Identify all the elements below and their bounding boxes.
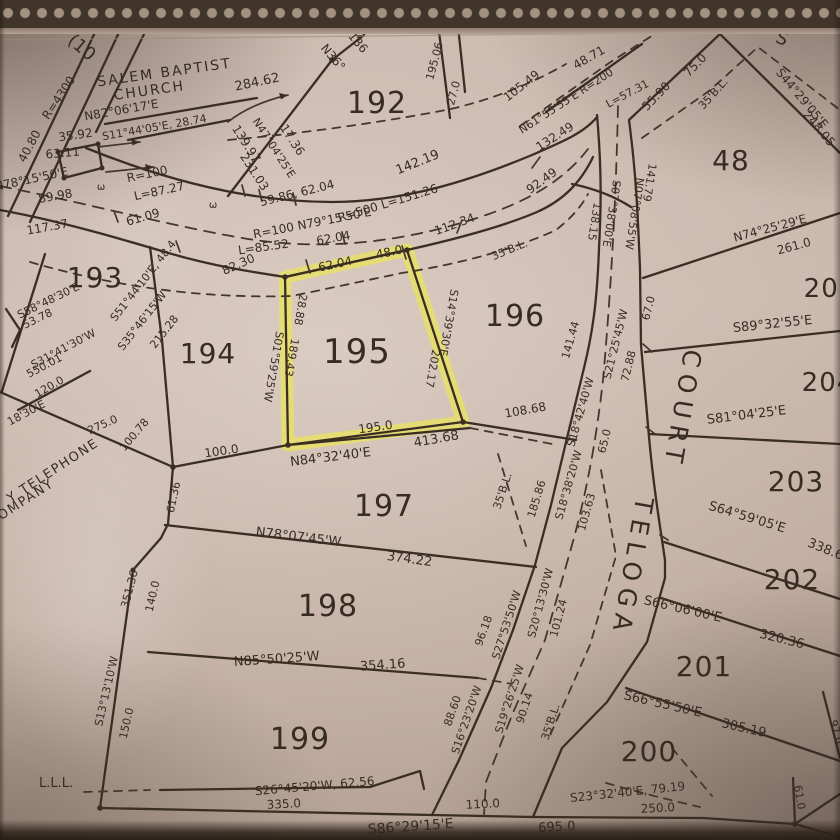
map-label: 63.11 bbox=[45, 145, 80, 162]
map-label: 96.18 bbox=[472, 614, 495, 648]
map-label: 48.0 bbox=[375, 242, 404, 261]
lot-number-195: 195 bbox=[323, 332, 391, 372]
map-label: S14°39'30'E bbox=[436, 288, 461, 357]
map-label: 374.22 bbox=[386, 549, 433, 570]
map-label: R=500 L=151.26 bbox=[336, 181, 439, 225]
tick-marks bbox=[98, 95, 668, 540]
lot-number-199: 199 bbox=[270, 722, 330, 757]
map-label: 100.78 bbox=[117, 416, 152, 454]
map-label: S66°55'50'E bbox=[622, 688, 703, 721]
map-label: 351.36 bbox=[118, 569, 141, 610]
map-label: 284.62 bbox=[233, 71, 281, 95]
map-label: 140.0 bbox=[143, 579, 163, 613]
map-label: 62.04 bbox=[315, 228, 351, 248]
map-label: 250.0 bbox=[640, 800, 675, 816]
lot-number-192: 192 bbox=[347, 86, 407, 121]
map-label: 354.16 bbox=[360, 656, 406, 674]
map-label: N07°08'55'W bbox=[622, 177, 646, 251]
map-label: S81°04'25'E bbox=[706, 403, 787, 428]
west-boundary bbox=[100, 467, 173, 808]
map-label: 28.88 bbox=[291, 293, 309, 326]
map-label: 142.19 bbox=[394, 147, 442, 178]
map-label: ω bbox=[97, 182, 105, 193]
lot-number-196: 196 bbox=[485, 299, 545, 334]
plat-map-svg: (10R=4300SALEM BAPTISTCHURCH284.62N82°06… bbox=[0, 0, 840, 840]
street-name: TELOGA bbox=[606, 494, 659, 640]
sheet-protector-edge bbox=[0, 28, 840, 34]
lot-number-200: 200 bbox=[621, 735, 677, 768]
lot-number-194: 194 bbox=[180, 337, 236, 370]
lot-number-201: 201 bbox=[676, 650, 732, 683]
map-label: 27.0 bbox=[444, 80, 463, 107]
map-label: 335.0 bbox=[266, 796, 301, 812]
map-label: 120.0 bbox=[32, 373, 66, 400]
map-label: S64°59'05'E bbox=[707, 499, 788, 537]
lot-199-dash bbox=[84, 790, 150, 792]
lot-number-48: 48 bbox=[712, 144, 750, 177]
map-label: 185.86 bbox=[525, 479, 549, 520]
lot-number-197: 197 bbox=[354, 489, 414, 524]
photo-left-shadow bbox=[0, 0, 5, 840]
map-label: 35.92 bbox=[57, 126, 93, 145]
map-label: 141.44 bbox=[559, 320, 582, 361]
map-label: 100.0 bbox=[203, 442, 239, 461]
map-label: N85°50'25'W bbox=[233, 649, 320, 670]
lot-number-202: 202 bbox=[764, 563, 820, 596]
map-label: 48.71 bbox=[571, 43, 608, 72]
map-label: S26°45'20'W, 62.56 bbox=[254, 774, 375, 798]
map-label: 18'30'E bbox=[5, 398, 47, 429]
map-label: L.L.L. bbox=[39, 776, 73, 791]
map-label: R=4300 bbox=[39, 74, 78, 122]
map-label: 305.19 bbox=[720, 716, 768, 741]
map-label: 35'B.L. bbox=[491, 471, 515, 511]
lot-number-198: 198 bbox=[298, 589, 358, 624]
lot-197-198-divider bbox=[165, 525, 536, 567]
sheet-protector-binding bbox=[0, 0, 840, 28]
photo-right-shadow bbox=[833, 0, 840, 840]
map-label: 261.0 bbox=[776, 235, 813, 257]
map-label: S66°06'00'E bbox=[642, 593, 723, 626]
map-label: 35'B.L. bbox=[539, 702, 563, 742]
map-label: 40.80 bbox=[15, 128, 43, 165]
plat-map-photo: (10R=4300SALEM BAPTISTCHURCH284.62N82°06… bbox=[0, 0, 840, 840]
map-label: S18°42'40'W bbox=[565, 376, 597, 448]
map-label: ω bbox=[209, 200, 217, 211]
map-label: 65.0 bbox=[595, 428, 614, 455]
map-label: S89°32'55'E bbox=[732, 313, 813, 336]
map-label: 67.0 bbox=[639, 295, 658, 322]
map-label: N36° bbox=[318, 41, 348, 73]
street-name: COURT bbox=[658, 347, 708, 471]
lot-193-194-divider bbox=[150, 247, 173, 467]
lot-number-203: 203 bbox=[768, 465, 824, 498]
map-label: 320.36 bbox=[758, 627, 806, 653]
map-label: 35'B.L. bbox=[696, 75, 731, 112]
map-label: 108.68 bbox=[503, 400, 547, 421]
map-label: 138.15 bbox=[585, 202, 604, 242]
map-label: 110.0 bbox=[465, 796, 500, 812]
map-label: 89.98 bbox=[37, 186, 73, 206]
map-label: 150.0 bbox=[117, 706, 137, 740]
map-label: 61.36 bbox=[164, 481, 183, 515]
map-label: N78°07'45'W bbox=[255, 525, 342, 550]
map-label: 103.63 bbox=[575, 492, 598, 533]
photo-bottom-shadow bbox=[0, 820, 840, 840]
map-label: S27°53'50'W bbox=[489, 589, 523, 661]
map-label: 72.88 bbox=[618, 349, 638, 383]
map-label: 61.09 bbox=[124, 206, 161, 229]
map-label: 35'B.L. bbox=[490, 237, 530, 263]
map-label: 202.17 bbox=[423, 349, 442, 389]
map-label: 275.0 bbox=[86, 412, 120, 437]
map-label: 105.49 bbox=[501, 67, 543, 104]
map-label: 75.0 bbox=[681, 51, 710, 80]
